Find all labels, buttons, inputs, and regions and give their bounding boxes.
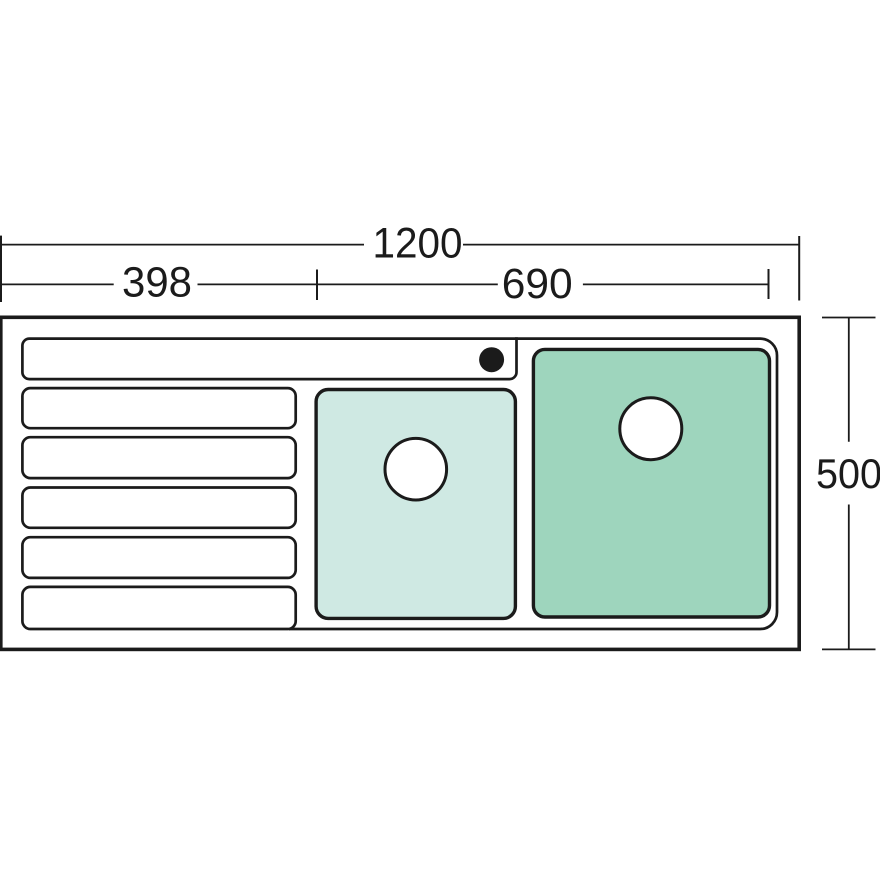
svg-text:690: 690 — [502, 261, 573, 308]
svg-text:500: 500 — [816, 450, 880, 497]
svg-text:1200: 1200 — [373, 220, 463, 267]
svg-text:398: 398 — [122, 260, 192, 307]
